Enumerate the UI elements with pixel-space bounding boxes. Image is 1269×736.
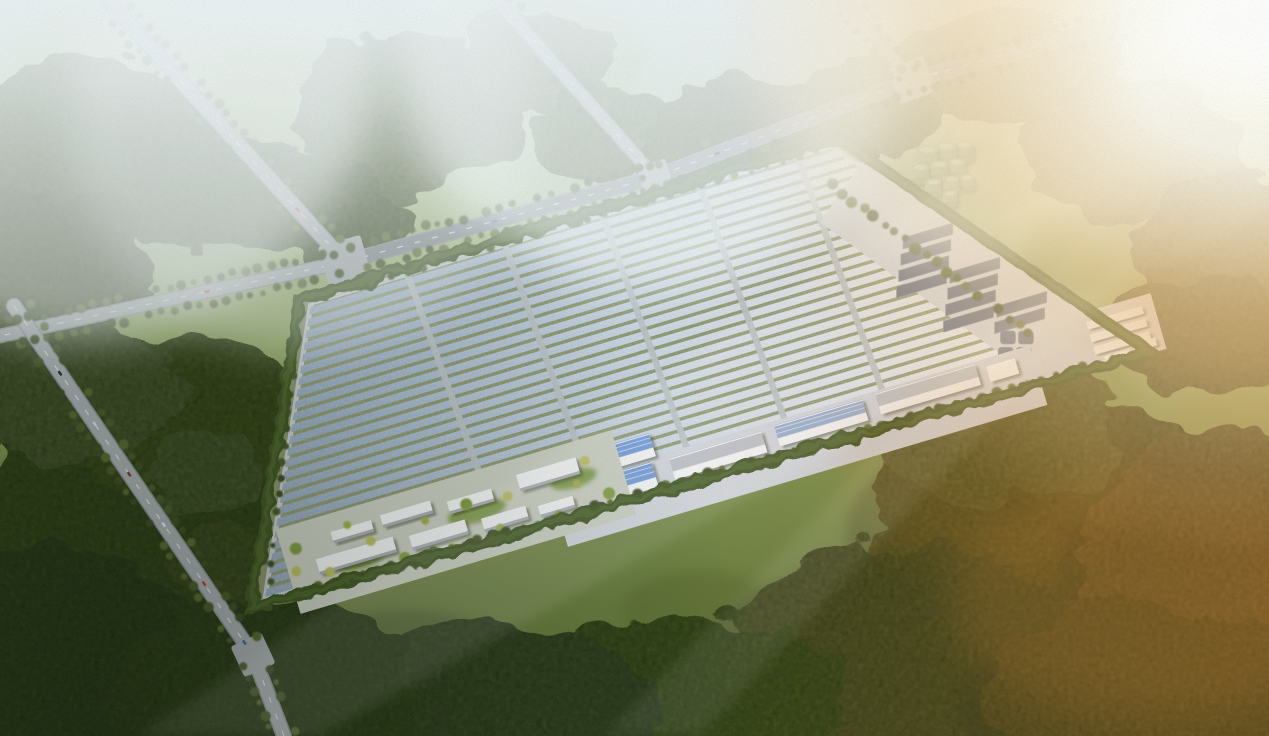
scene-canvas [0,0,1269,736]
atmosphere-layer [0,0,1269,736]
aerial-rendering-figure [0,0,1269,736]
photo-grain [0,0,1269,736]
